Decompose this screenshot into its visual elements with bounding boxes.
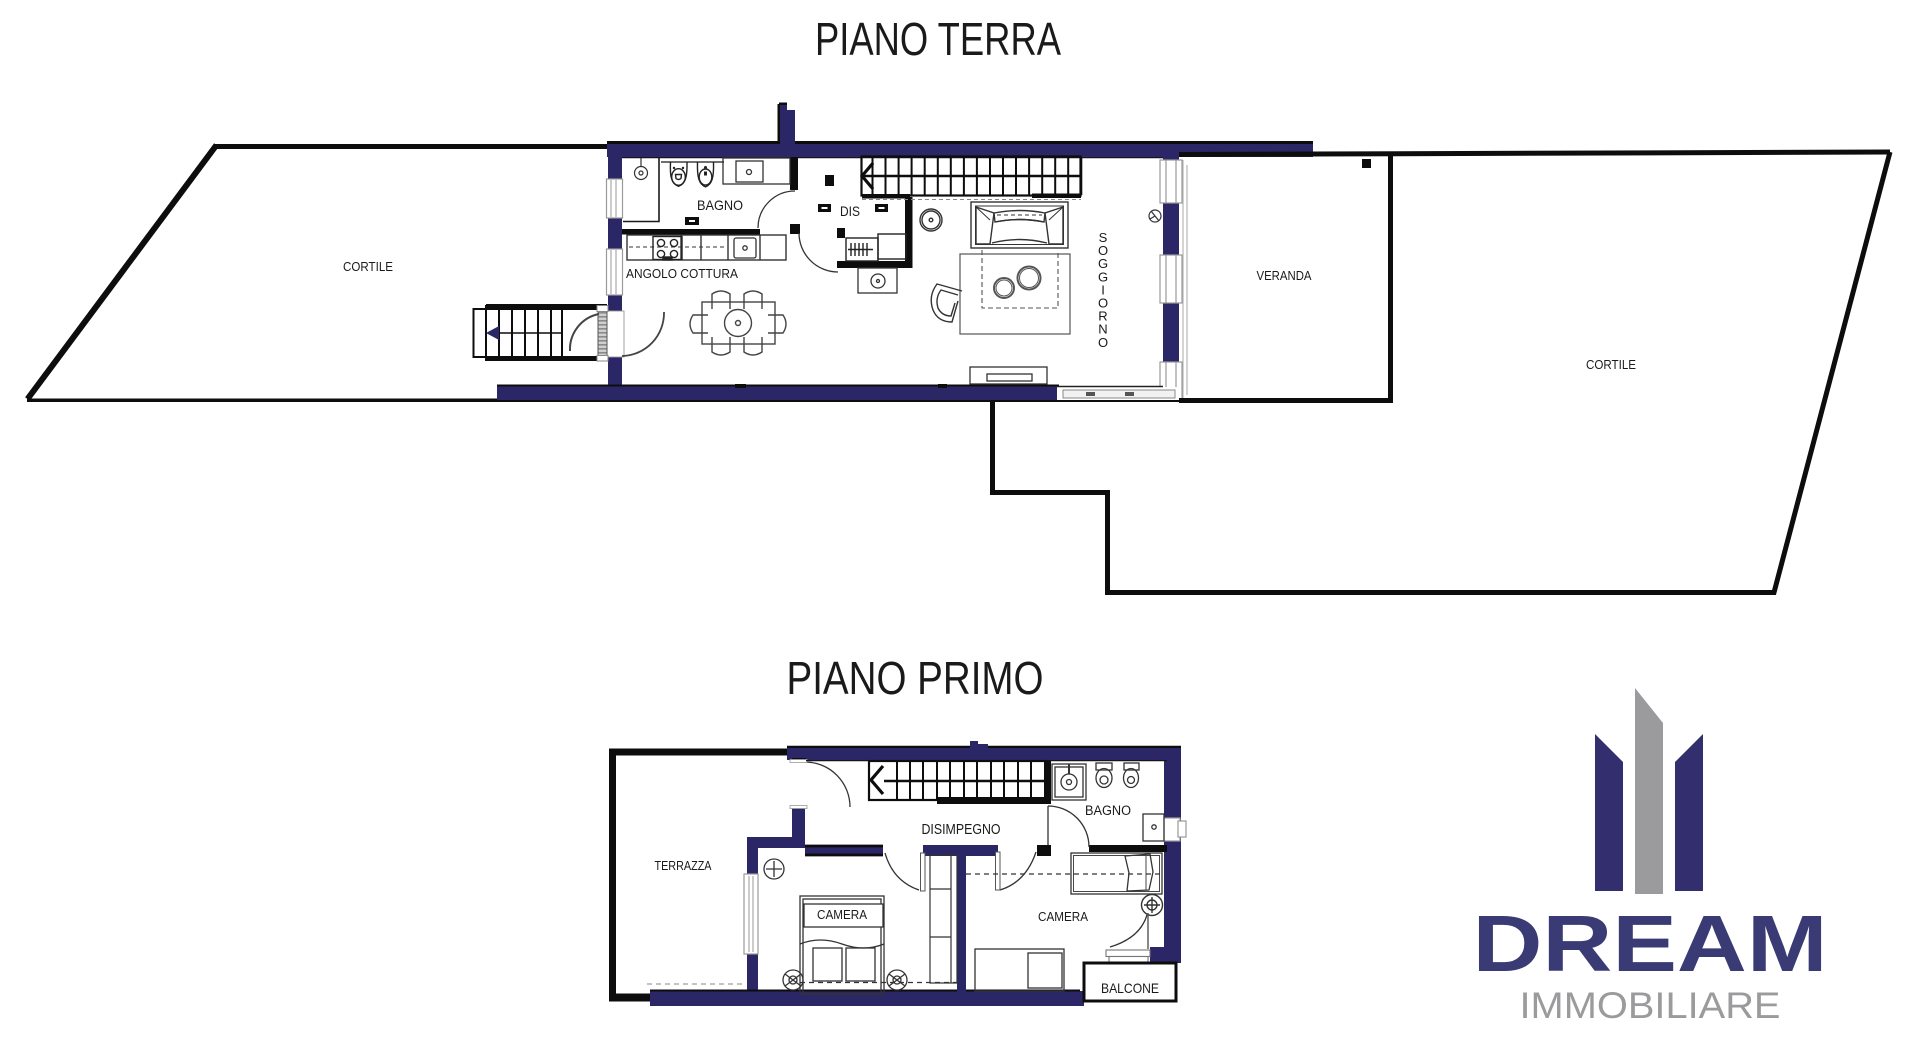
svg-text:PIANO PRIMO: PIANO PRIMO [787, 652, 1044, 704]
svg-text:O: O [1098, 335, 1108, 350]
svg-text:IMMOBILIARE: IMMOBILIARE [1520, 985, 1781, 1026]
svg-text:BALCONE: BALCONE [1101, 980, 1159, 996]
svg-text:CORTILE: CORTILE [343, 259, 393, 274]
svg-text:DREAM: DREAM [1473, 899, 1828, 988]
svg-text:ANGOLO COTTURA: ANGOLO COTTURA [626, 266, 738, 281]
svg-text:CAMERA: CAMERA [1038, 910, 1089, 924]
svg-text:CAMERA: CAMERA [817, 908, 868, 922]
svg-text:VERANDA: VERANDA [1257, 268, 1312, 283]
svg-text:DISIMPEGNO: DISIMPEGNO [922, 821, 1001, 838]
svg-text:DIS: DIS [840, 203, 860, 219]
svg-text:PIANO TERRA: PIANO TERRA [815, 13, 1061, 65]
svg-text:BAGNO: BAGNO [697, 197, 743, 213]
svg-text:BAGNO: BAGNO [1085, 803, 1131, 818]
svg-text:TERRAZZA: TERRAZZA [655, 858, 712, 873]
svg-text:CORTILE: CORTILE [1586, 357, 1636, 372]
